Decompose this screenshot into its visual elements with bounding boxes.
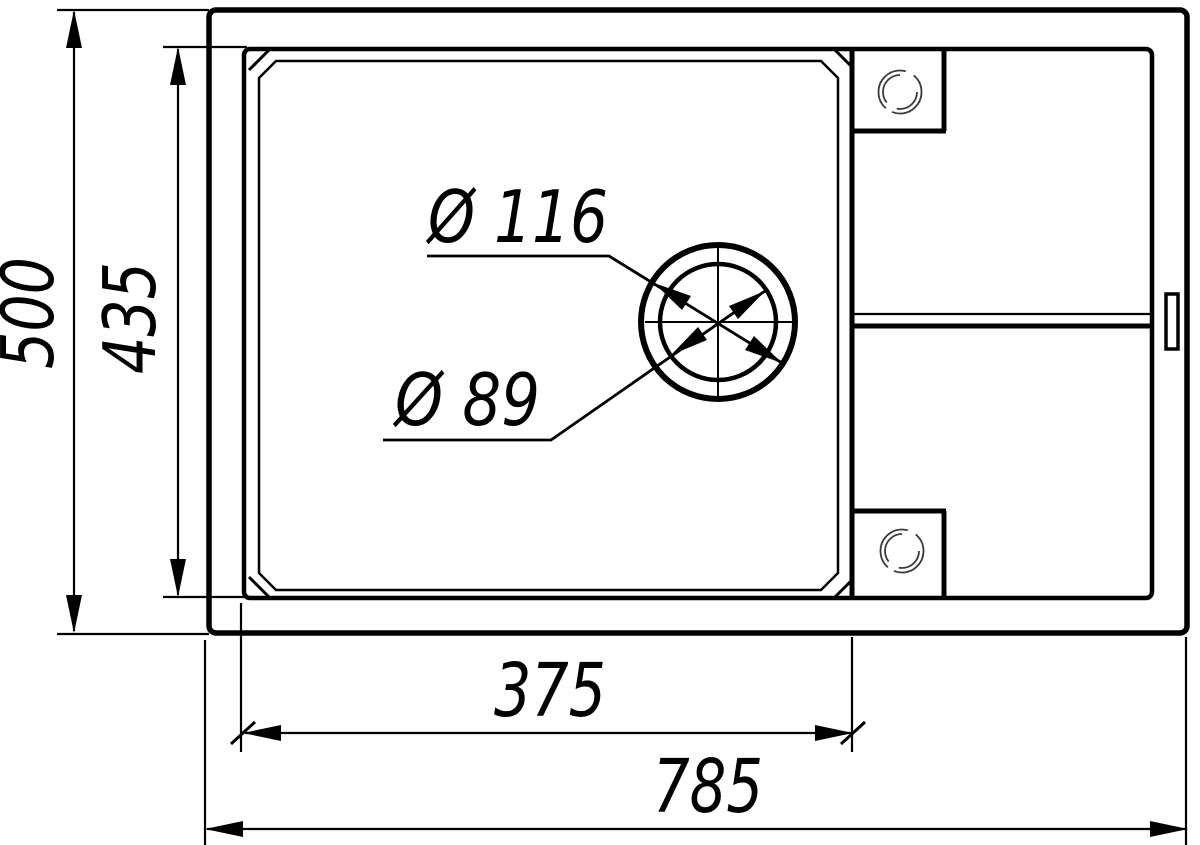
arrow-bowl-height-top (170, 47, 186, 85)
top-faucet-hole-inner-arc (883, 75, 917, 109)
bowl-height-label: 435 (88, 262, 172, 374)
bowl-inner-outline (259, 61, 838, 590)
drain-outer-diameter-label: Ø 116 (426, 175, 608, 259)
bowl-group (249, 49, 852, 598)
bottom-faucet-hole-circle (881, 530, 924, 573)
technical-drawing-canvas: 500 435 375 785 Ø 116 Ø 89 (0, 0, 1200, 845)
arrow-overall-width-right (1150, 821, 1188, 837)
bowl-width-label: 375 (494, 648, 606, 734)
overall-width-label: 785 (653, 744, 763, 830)
dimension-labels-group: 500 435 375 785 Ø 116 Ø 89 (0, 175, 763, 830)
rim-notch-rect (1166, 294, 1178, 349)
bowl-corner-bevel-top-left (249, 50, 269, 70)
sink-drawing: 500 435 375 785 Ø 116 Ø 89 (0, 0, 1200, 845)
top-faucet-hole-circle (879, 71, 922, 114)
drainboard-group (854, 294, 1178, 349)
bottom-faucet-hole-inner-arc (885, 534, 919, 568)
arrow-overall-width-left (205, 821, 243, 837)
bowl-corner-bevel-top-right (835, 50, 851, 66)
overall-height-label: 500 (0, 257, 70, 369)
drain-inner-diameter-label: Ø 89 (392, 358, 540, 442)
arrow-overall-height-top (66, 10, 82, 48)
extension-lines-group (57, 10, 1186, 845)
leader-line-drain-outer (427, 256, 782, 363)
arrow-bowl-height-bottom (170, 559, 186, 597)
arrowheads-group (66, 10, 1188, 837)
arrow-drain-inner-sw (671, 327, 707, 355)
arrow-overall-height-bottom (66, 595, 82, 633)
bowl-corner-bevel-bottom-right (835, 581, 851, 597)
